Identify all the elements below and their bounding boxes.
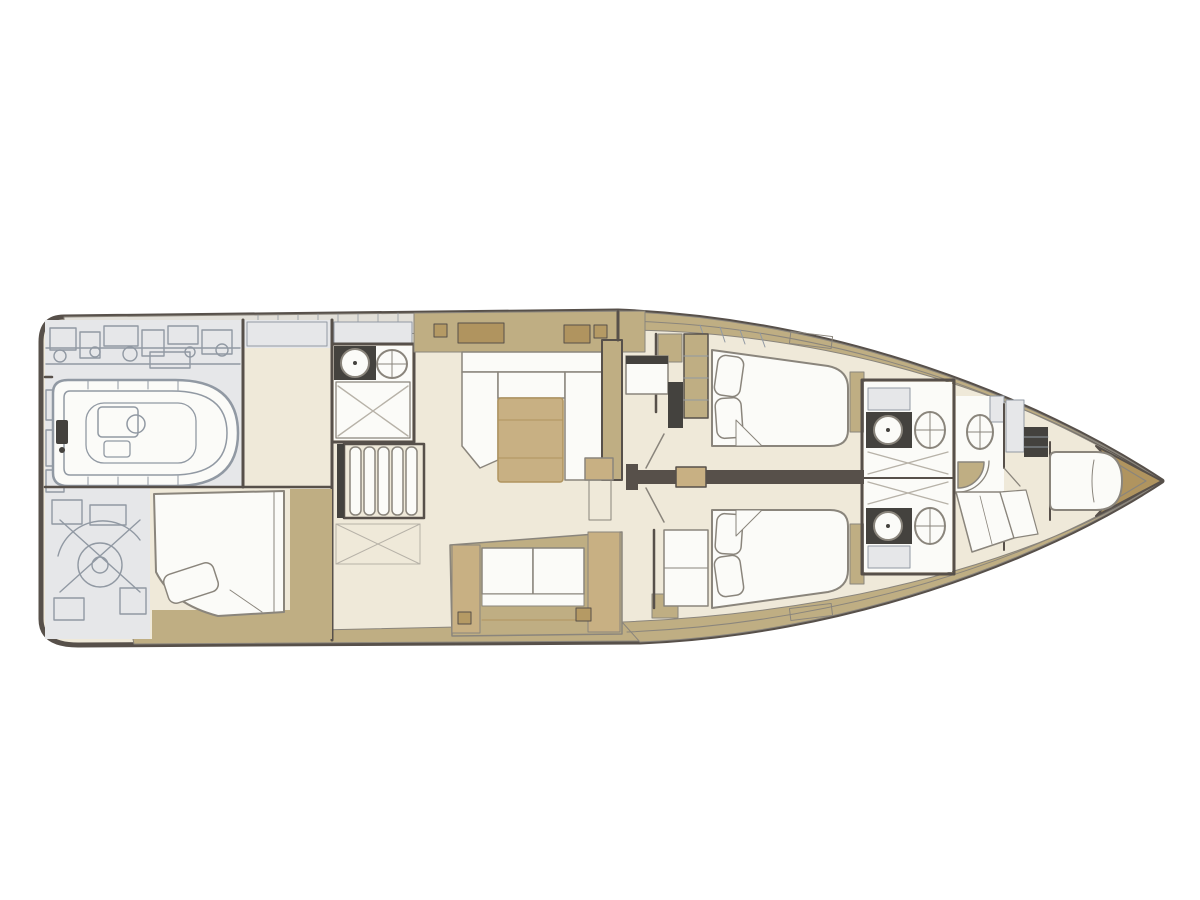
desk-port-top <box>626 356 668 364</box>
twin-heads <box>862 380 954 574</box>
head-port-drain <box>886 428 890 432</box>
galley-stove <box>458 323 504 343</box>
aft-locker-cabinet <box>247 322 327 346</box>
bed-starboard-pillow-2 <box>713 554 744 597</box>
stairs-newel <box>337 444 344 518</box>
propeller-dot <box>59 447 65 453</box>
head-starboard-drain <box>886 524 890 528</box>
yacht-floor-plan <box>0 0 1200 900</box>
aft-head-cabinet <box>334 322 412 344</box>
head-starboard-cabinet <box>868 546 910 568</box>
aft-head <box>332 322 414 442</box>
speaker-left <box>458 612 471 624</box>
sofa-mid-seat <box>498 372 565 398</box>
outboard-motor <box>56 420 68 444</box>
sofa-aft-cushion-left <box>482 548 533 594</box>
canvas <box>0 0 1200 900</box>
fwd-bed <box>1050 452 1122 510</box>
sofa-aft-cushion-right <box>533 548 584 594</box>
spine-end-cap <box>626 464 638 490</box>
sofa-aft-cabinet-right <box>588 532 620 632</box>
sofa-aft-front <box>482 594 584 606</box>
speaker-right <box>576 608 591 621</box>
sofa-back <box>462 352 602 372</box>
fwd-cabin-wardrobe <box>1024 427 1048 457</box>
dinghy-seat <box>104 441 130 457</box>
galley-appliance-right <box>594 325 607 338</box>
galley-appliance-left <box>434 324 447 337</box>
fwd-head-locker <box>990 396 1004 422</box>
steering-bay-floor <box>45 487 150 639</box>
sofa-left-seat <box>462 372 498 468</box>
salon-table <box>498 398 563 482</box>
chart-table-seat <box>585 458 613 480</box>
mast-block <box>676 467 706 487</box>
aft-head-sink-drain <box>353 361 357 365</box>
aft-cabin <box>150 489 332 639</box>
fwd-cabin-cabinet <box>1006 400 1024 452</box>
stair-treads <box>350 447 417 515</box>
galley-sink-unit <box>564 325 590 343</box>
wardrobe-port <box>684 334 708 418</box>
dinghy-tube <box>53 380 238 486</box>
tv-port <box>668 382 683 428</box>
tender-dinghy <box>53 380 238 486</box>
head-port-cabinet <box>868 388 910 410</box>
bed-port-pillow-1 <box>713 354 744 397</box>
